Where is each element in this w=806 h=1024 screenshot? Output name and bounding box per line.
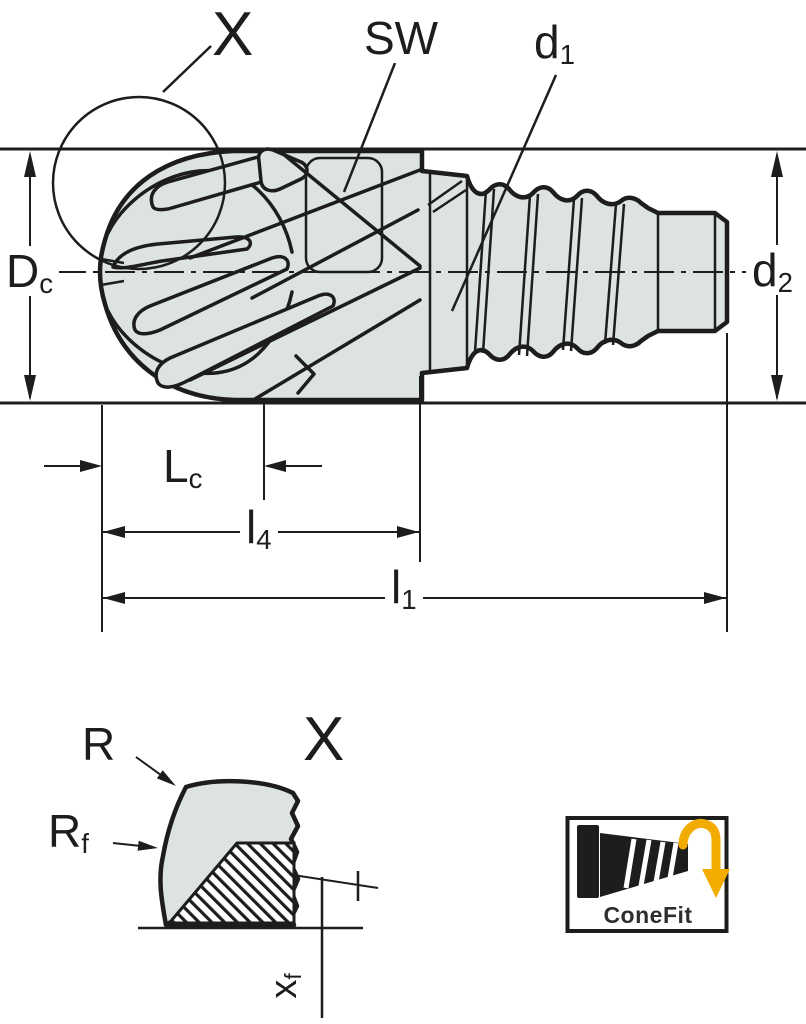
label-wrench-size: SW	[358, 13, 444, 63]
technical-drawing-page: X SW d1 Dc d2 Lc l4 l1 R Rf X xf ConeFit	[0, 0, 806, 1024]
label-cutting-length: Lc	[157, 441, 208, 491]
conefit-logo-text: ConeFit	[572, 902, 724, 929]
detail-view-x	[113, 757, 378, 1018]
label-thread-diameter: d1	[528, 17, 581, 67]
label-cutting-diameter: Dc	[0, 246, 59, 296]
label-length-l4: l4	[240, 502, 278, 552]
logo-shank-silhouette	[577, 825, 599, 898]
label-face-radius: Rf	[42, 806, 95, 856]
label-chamfer-width: xf	[265, 951, 309, 1021]
label-length-l1: l1	[385, 562, 423, 612]
label-adapter-diameter: d2	[746, 245, 799, 295]
rotation-down-arrow-icon	[683, 823, 730, 898]
label-detail-title: X	[303, 707, 344, 772]
drawing-canvas	[0, 0, 806, 1024]
label-detail-ref: X	[212, 2, 253, 67]
detail-x-leader	[163, 46, 211, 92]
label-corner-radius: R	[76, 719, 121, 769]
